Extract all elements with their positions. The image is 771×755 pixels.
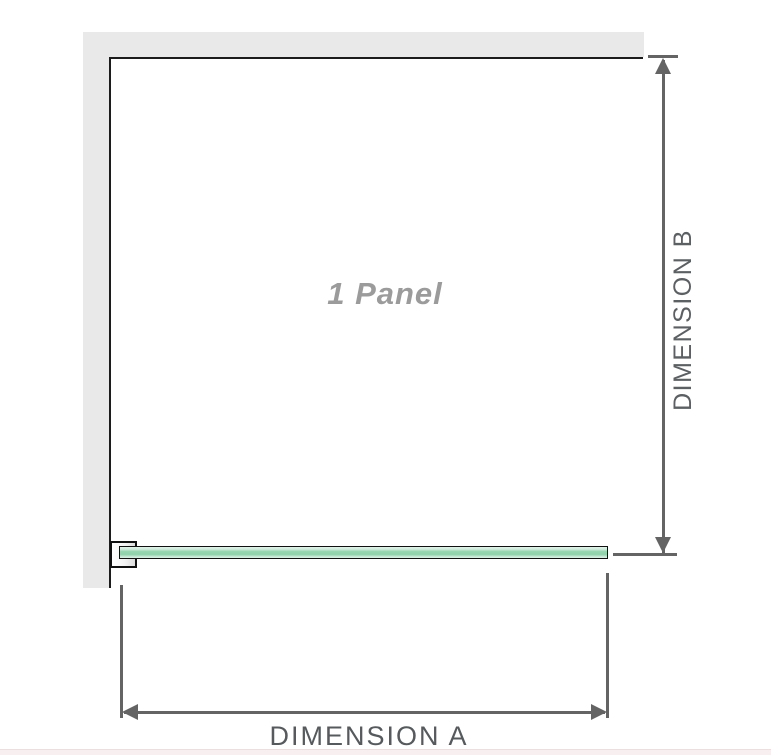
dimension-a-right-extension bbox=[606, 573, 609, 718]
arrow-left-icon bbox=[122, 704, 138, 720]
wall-left-band bbox=[83, 32, 109, 588]
panel-dimension-diagram: 1 Panel DIMENSION B DIMENSION A bbox=[0, 0, 771, 755]
dimension-a-label: DIMENSION A bbox=[169, 721, 569, 752]
dimension-b-line bbox=[662, 60, 665, 553]
dimension-a-left-extension bbox=[120, 585, 123, 718]
panel-count-label: 1 Panel bbox=[235, 276, 535, 312]
wall-top-band bbox=[83, 32, 644, 57]
footer-band bbox=[0, 749, 771, 755]
dimension-a-line bbox=[124, 711, 605, 714]
glass-panel-bar bbox=[119, 546, 608, 559]
wall-inner-edge-left bbox=[109, 57, 111, 588]
arrow-right-icon bbox=[591, 704, 607, 720]
dimension-b-bottom-tick bbox=[613, 553, 677, 556]
dimension-b-label: DIMENSION B bbox=[669, 70, 699, 570]
wall-inner-edge-top bbox=[109, 57, 643, 59]
